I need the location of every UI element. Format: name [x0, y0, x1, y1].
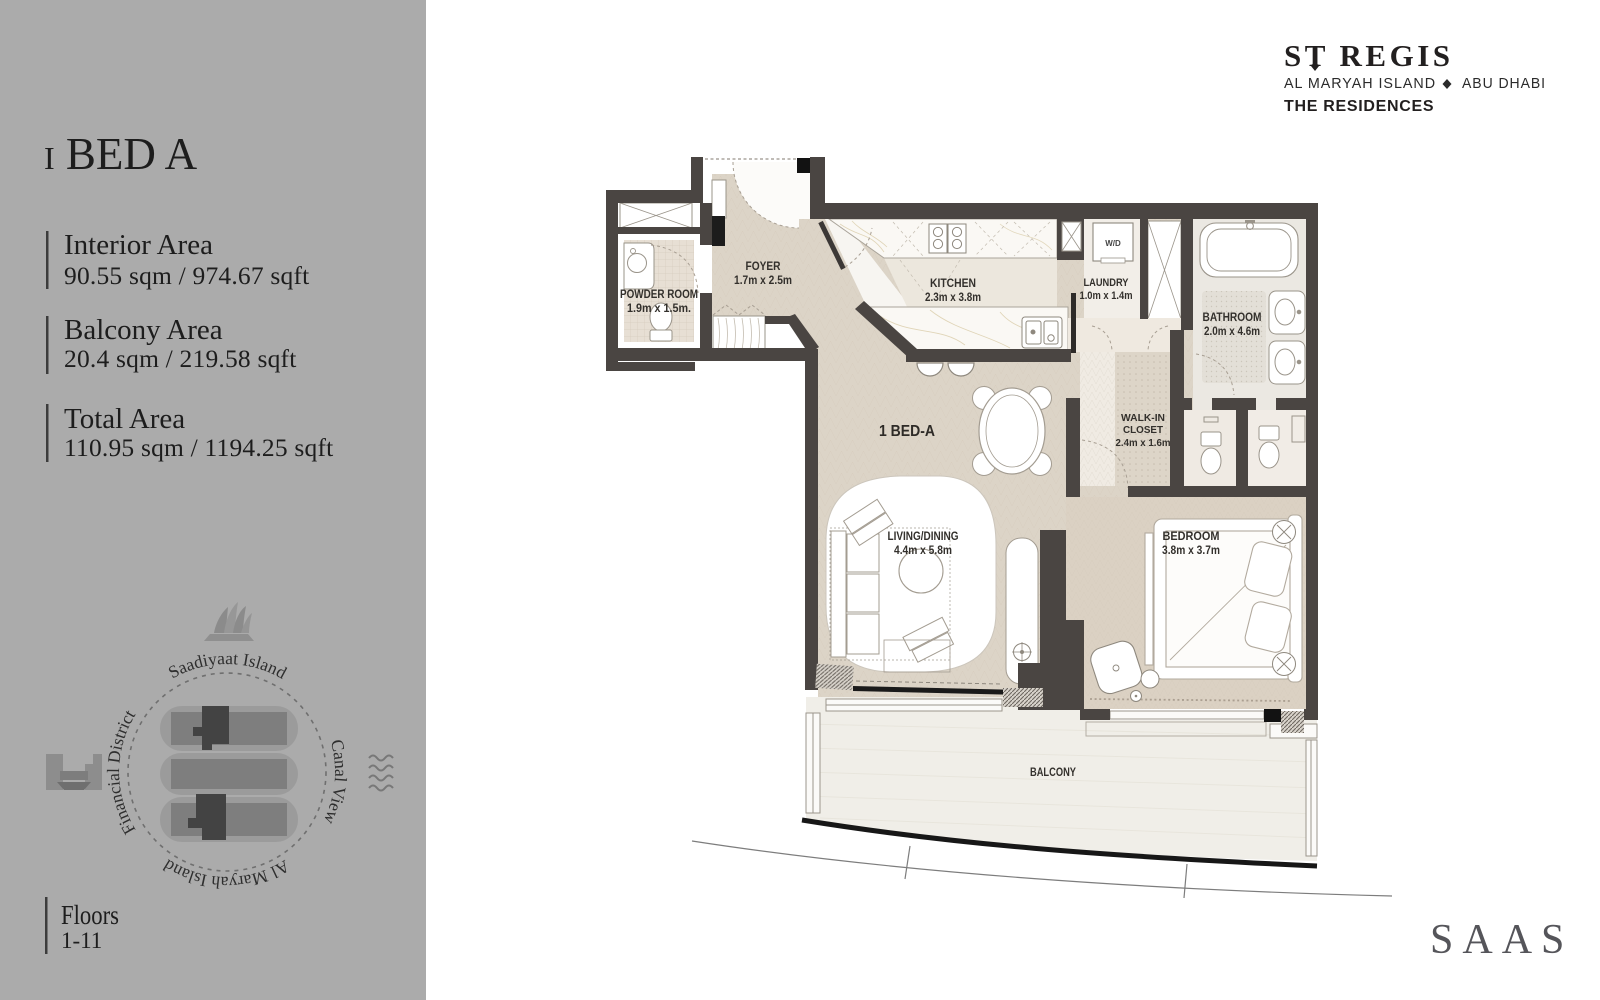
svg-text:BALCONY: BALCONY — [1030, 765, 1076, 779]
svg-text:Balcony Area: Balcony Area — [64, 314, 223, 346]
svg-text:POWDER ROOM: POWDER ROOM — [620, 289, 698, 301]
svg-text:THE RESIDENCES: THE RESIDENCES — [1284, 98, 1434, 115]
svg-text:1-11: 1-11 — [61, 928, 102, 953]
svg-text:Interior Area: Interior Area — [64, 229, 213, 261]
svg-text:1.7m x 2.5m: 1.7m x 2.5m — [734, 275, 792, 287]
svg-text:1 BED-A: 1 BED-A — [879, 423, 935, 440]
svg-text:20.4 sqm / 219.58 sqft: 20.4 sqm / 219.58 sqft — [64, 344, 297, 373]
svg-text:BATHROOM: BATHROOM — [1203, 312, 1262, 324]
svg-text:CLOSET: CLOSET — [1123, 424, 1164, 436]
svg-text:AL MARYAH ISLAND: AL MARYAH ISLAND — [1284, 75, 1436, 92]
svg-text:4.4m x 5.8m: 4.4m x 5.8m — [894, 545, 952, 557]
svg-text:LAUNDRY: LAUNDRY — [1084, 277, 1130, 289]
svg-text:I BED A: I BED A — [44, 129, 198, 179]
svg-text:LIVING/DINING: LIVING/DINING — [888, 531, 959, 543]
svg-text:WALK-IN: WALK-IN — [1121, 412, 1165, 424]
svg-text:Total Area: Total Area — [64, 403, 185, 435]
svg-text:2.0m x 4.6m: 2.0m x 4.6m — [1204, 326, 1260, 338]
svg-text:2.4m x 1.6m: 2.4m x 1.6m — [1116, 437, 1171, 449]
svg-text:W/D: W/D — [1105, 239, 1121, 248]
svg-text:SAAS: SAAS — [1430, 917, 1573, 963]
svg-text:3.8m x 3.7m: 3.8m x 3.7m — [1162, 545, 1220, 557]
svg-text:ST REGIS: ST REGIS — [1284, 38, 1452, 73]
svg-text:FOYER: FOYER — [746, 261, 782, 273]
svg-text:1.0m x 1.4m: 1.0m x 1.4m — [1080, 290, 1133, 302]
svg-text:Floors: Floors — [61, 900, 119, 930]
svg-text:2.3m x 3.8m: 2.3m x 3.8m — [925, 290, 981, 304]
svg-text:ABU DHABI: ABU DHABI — [1462, 75, 1546, 92]
svg-text:BEDROOM: BEDROOM — [1163, 531, 1220, 543]
svg-text:1.9m x 1.5m.: 1.9m x 1.5m. — [627, 303, 691, 315]
svg-text:110.95 sqm / 1194.25 sqft: 110.95 sqm / 1194.25 sqft — [64, 433, 333, 462]
svg-text:KITCHEN: KITCHEN — [930, 276, 976, 290]
svg-text:90.55 sqm / 974.67 sqft: 90.55 sqm / 974.67 sqft — [64, 261, 309, 290]
